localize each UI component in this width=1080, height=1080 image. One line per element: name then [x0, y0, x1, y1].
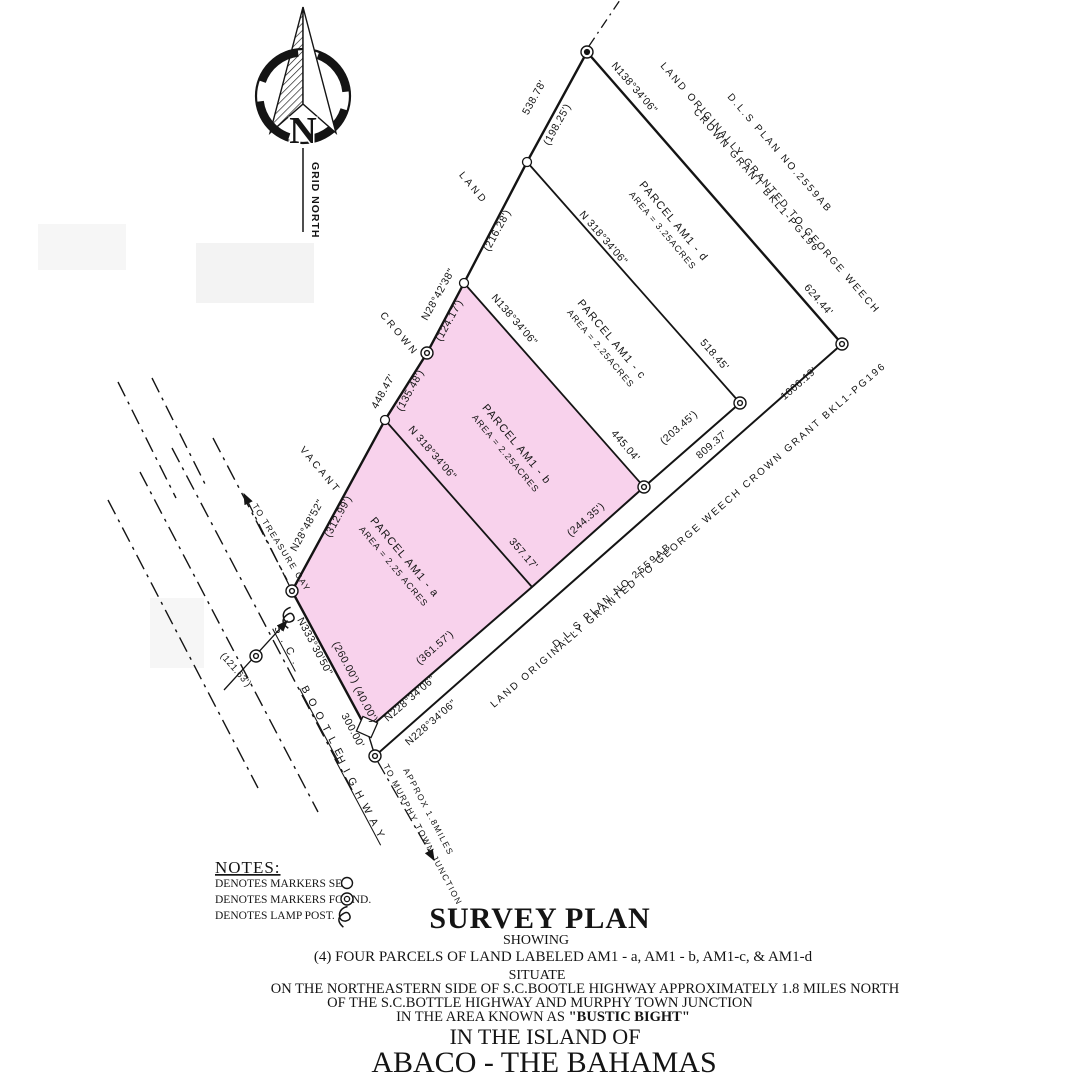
- note-lamp-post: DENOTES LAMP POST.: [215, 910, 335, 922]
- apex-extension: [589, 0, 620, 46]
- survey-plan-sheet: N GRID NORTH 538.78' (198.25') (216.28')…: [0, 0, 1080, 1080]
- to-murphy-label: TO MURPHY TOWN JUNCTION: [381, 762, 464, 907]
- scan-artifacts: [38, 224, 314, 668]
- vacant-label: VACANT: [297, 445, 343, 496]
- notes-legend: NOTES: DENOTES MARKERS SET. DENOTES MARK…: [215, 858, 371, 928]
- note-markers-set: DENOTES MARKERS SET.: [215, 878, 351, 890]
- legend-lamp-post-icon: [335, 906, 354, 928]
- north-arrow: N GRID NORTH: [249, 7, 357, 239]
- tie-dist: (121.63'): [218, 651, 254, 690]
- title-area-known-as: IN THE AREA KNOWN AS "BUSTIC BIGHT": [396, 1009, 690, 1025]
- to-treasure-cay-label: TO TREASURE CAY: [250, 502, 312, 594]
- highway-name-bootle: BOOTLE: [298, 684, 348, 764]
- title-abaco-bahamas: ABACO - THE BAHAMAS: [371, 1046, 716, 1079]
- grid-north-label: GRID NORTH: [309, 162, 321, 239]
- title-parcels-line: (4) FOUR PARCELS OF LAND LABELED AM1 - a…: [314, 949, 813, 965]
- north-letter: N: [289, 110, 316, 152]
- nw-total-upper: 538.78': [520, 78, 549, 117]
- survey-drawing: N GRID NORTH 538.78' (198.25') (216.28')…: [0, 0, 1080, 1080]
- legend-marker-set-icon: [342, 878, 353, 889]
- title-showing: SHOWING: [503, 933, 569, 948]
- title-survey-plan: SURVEY PLAN: [429, 902, 650, 935]
- title-area-bold: "BUSTIC BIGHT": [569, 1009, 690, 1025]
- title-block: SURVEY PLAN SHOWING (4) FOUR PARCELS OF …: [271, 902, 900, 1079]
- land-label: LAND: [456, 170, 489, 207]
- notes-title: NOTES:: [215, 858, 281, 877]
- crown-label: CROWN: [377, 310, 420, 358]
- title-area-prefix: IN THE AREA KNOWN AS: [396, 1009, 569, 1025]
